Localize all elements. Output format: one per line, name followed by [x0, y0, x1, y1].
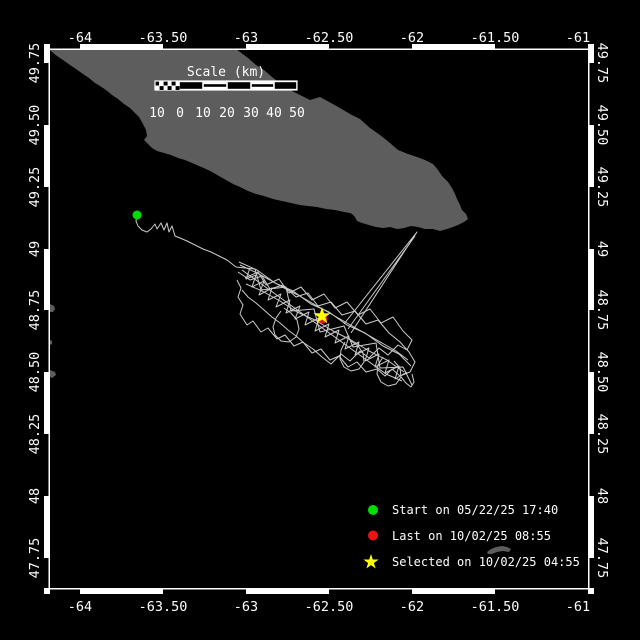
latitude-label-left: 48.50: [27, 352, 43, 393]
latitude-label-right: 48: [594, 488, 610, 504]
frame-right-segment: [590, 434, 595, 496]
scale-distance-label: 20: [219, 106, 235, 121]
frame-left-segment: [44, 63, 49, 125]
longitude-label-top: -62.50: [305, 30, 354, 46]
frame-left-segment: [44, 187, 49, 249]
scale-solid-segment: [180, 82, 202, 89]
scale-solid-segment: [228, 82, 250, 89]
scale-checker-cell: [156, 82, 159, 86]
longitude-label-bottom: -63: [234, 599, 258, 615]
longitude-label-top: -62: [400, 30, 424, 46]
latitude-label-right: 48.25: [594, 414, 610, 455]
scale-distance-label: 10: [149, 106, 165, 121]
frame-bottom-segment: [495, 590, 588, 595]
longitude-label-bottom: -62.50: [305, 599, 354, 615]
scale-checker-cell: [172, 82, 176, 86]
longitude-label-top: -63.50: [139, 30, 188, 46]
scale-checker-cell: [160, 86, 164, 90]
latitude-label-left: 48: [27, 488, 43, 504]
frame-right-segment: [590, 63, 595, 125]
latitude-label-right: 49.50: [594, 105, 610, 146]
longitude-label-bottom: -63.50: [139, 599, 188, 615]
longitude-label-top: -61.50: [471, 30, 520, 46]
latitude-label-left: 49.75: [27, 43, 43, 84]
longitude-label-top: -61: [566, 30, 590, 46]
latitude-label-left: 48.25: [27, 414, 43, 455]
frame-bottom-segment: [329, 590, 412, 595]
latitude-label-left: 47.75: [27, 538, 43, 579]
scale-checker-cell: [176, 86, 180, 90]
longitude-label-top: -63: [234, 30, 258, 46]
frame-left-segment: [44, 310, 49, 372]
latitude-label-right: 49.75: [594, 43, 610, 84]
frame-left-segment: [44, 434, 49, 496]
legend-last-label: Last on 10/02/25 08:55: [392, 529, 551, 543]
latitude-label-left: 49.50: [27, 105, 43, 146]
latitude-label-left: 49.25: [27, 167, 43, 208]
legend: Start on 05/22/25 17:40 Last on 10/02/25…: [363, 503, 579, 569]
longitude-label-bottom: -64: [68, 599, 92, 615]
frame-bottom-segment: [163, 590, 246, 595]
frame-right-segment: [590, 310, 595, 372]
longitude-label-bottom: -61.50: [471, 599, 520, 615]
legend-selected-label: Selected on 10/02/25 04:55: [392, 555, 580, 569]
latitude-label-left: 48.75: [27, 290, 43, 331]
start-position-marker[interactable]: [133, 211, 142, 220]
scale-checker-cell: [164, 82, 168, 86]
latitude-label-right: 47.75: [594, 538, 610, 579]
legend-start-label: Start on 05/22/25 17:40: [392, 503, 558, 517]
longitude-label-bottom: -61: [566, 599, 590, 615]
legend-last-marker: [368, 531, 378, 541]
scale-distance-label: 30: [243, 106, 259, 121]
scale-striped-segment: [252, 84, 273, 87]
frame-bottom-segment: [50, 590, 80, 595]
scale-solid-segment: [275, 82, 296, 89]
scale-striped-segment: [204, 84, 226, 87]
latitude-label-left: 49: [27, 241, 43, 257]
latitude-label-right: 48.75: [594, 290, 610, 331]
scale-checker-cell: [168, 86, 172, 90]
frame-right-segment: [590, 558, 595, 588]
scale-distance-label: 10: [195, 106, 211, 121]
scale-distance-label: 40: [266, 106, 282, 121]
tracking-map-canvas: Scale (km) 1001020304050 -64-63.50-63-62…: [0, 0, 640, 640]
latitude-label-right: 49.25: [594, 167, 610, 208]
scale-distance-label: 0: [176, 106, 184, 121]
longitude-label-bottom: -62: [400, 599, 424, 615]
longitude-label-top: -64: [68, 30, 92, 46]
scale-distance-label: 50: [289, 106, 305, 121]
scale-bar-title: Scale (km): [187, 65, 265, 80]
latitude-label-right: 49: [594, 241, 610, 257]
latitude-label-right: 48.50: [594, 352, 610, 393]
legend-start-marker: [368, 505, 378, 515]
frame-right-segment: [590, 187, 595, 249]
frame-left-segment: [44, 558, 49, 588]
tracking-map-window: Scale (km) 1001020304050 -64-63.50-63-62…: [0, 0, 640, 640]
